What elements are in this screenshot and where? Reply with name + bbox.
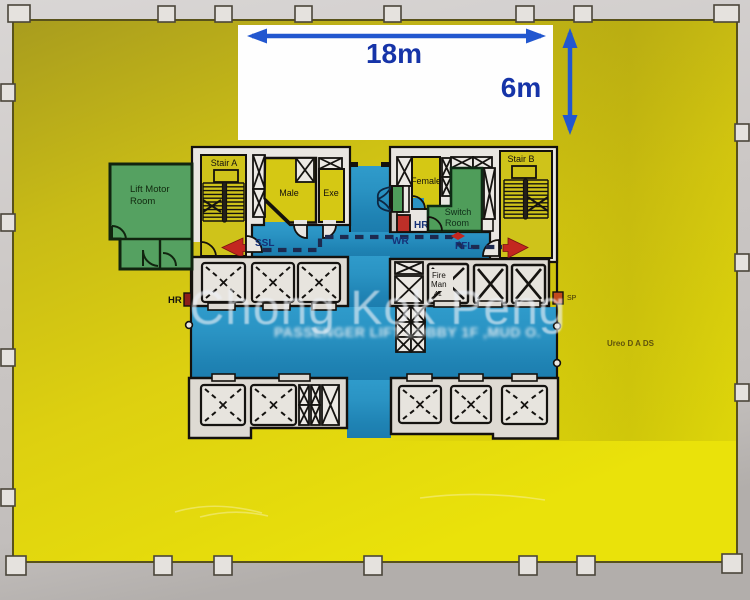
svg-text:Stair A: Stair A — [211, 158, 238, 168]
svg-text:HR: HR — [168, 295, 182, 306]
svg-text:SSL: SSL — [255, 238, 274, 249]
svg-text:WR: WR — [392, 236, 409, 247]
svg-text:SP: SP — [567, 295, 577, 302]
svg-text:18m: 18m — [366, 38, 422, 69]
svg-text:Room: Room — [130, 196, 155, 207]
svg-text:6m: 6m — [501, 72, 541, 103]
svg-text:Female: Female — [411, 176, 441, 186]
svg-text:Stair B: Stair B — [507, 154, 534, 164]
svg-text:Room: Room — [445, 218, 469, 228]
svg-text:Male: Male — [279, 188, 299, 198]
svg-text:Exe: Exe — [323, 188, 339, 198]
svg-text:Lift Motor: Lift Motor — [130, 184, 170, 195]
svg-text:Fire: Fire — [432, 271, 446, 280]
svg-text:Switch: Switch — [445, 207, 472, 217]
svg-text:Ureo D A DS: Ureo D A DS — [607, 339, 655, 348]
svg-text:FFL: FFL — [455, 241, 473, 252]
svg-text:Chong Kok Peng: Chong Kok Peng — [190, 282, 567, 335]
